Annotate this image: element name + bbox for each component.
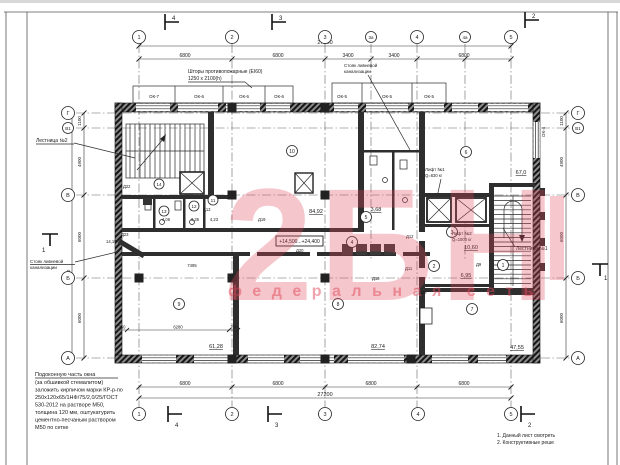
dim-bottom-seg-4: 6800	[458, 381, 469, 387]
axis-2b: 2	[230, 412, 233, 418]
note-left-4: 250х120х65/1НФ/75/2,0/25/ГОСТ	[35, 395, 118, 401]
dim-int-3: 6280	[173, 325, 183, 330]
door-d13: Д13	[203, 207, 211, 212]
axis-5b: 5	[509, 412, 512, 418]
window-label-ok5b: ОК-5	[382, 94, 393, 99]
room-11: 11	[211, 198, 216, 203]
watermark: 2БН федеральная сеть	[224, 155, 564, 334]
dim-int-2: 750	[119, 325, 127, 330]
note-right-2: 2. Конструктивные реше	[497, 440, 554, 446]
section-left-1: 1	[42, 248, 46, 254]
note-left-2: (за обшивкой стемалитом)	[35, 379, 103, 386]
section-top-3: 3	[279, 16, 283, 22]
dimensions-left: 1100 4900 6000 6000 10000	[66, 111, 87, 361]
axis-3b: 3	[323, 412, 326, 418]
window-label-ok5c: ОК-5	[424, 94, 435, 99]
axis-1b: 1	[137, 412, 140, 418]
dim-top-seg-1: 6800	[179, 53, 190, 59]
watermark-letter-partial	[550, 196, 564, 280]
room-9: 9	[178, 302, 181, 308]
axis-3a: 3а	[368, 35, 374, 40]
note-left-6: толщина 120 мм, оштукатурить	[35, 410, 115, 416]
dim-left-seg-3: 6000	[77, 231, 82, 242]
note-block-left: Подоконную часть окна (за обшивкой стема…	[35, 372, 123, 431]
parapet-boxes	[133, 83, 446, 103]
dimensions-interior: 7495 750 6280 750	[116, 263, 240, 332]
axis-4a: 4а	[462, 35, 468, 40]
dim-bottom-seg-2: 6800	[272, 381, 283, 387]
axis-a: А	[66, 356, 70, 362]
axis-4: 4	[415, 35, 418, 41]
axis-b-r: Б	[576, 276, 580, 282]
note-left-1: Подоконную часть окна	[35, 372, 96, 378]
grid-bubbles-bottom: 1 2 3 4 5	[133, 408, 518, 421]
stair-2-label: Лестница №2	[36, 138, 68, 144]
dim-bottom-seg-1: 6800	[179, 381, 190, 387]
section-top-4: 4	[172, 16, 176, 22]
window-right-wall	[533, 122, 539, 158]
note-left-5: 530-2012 на растворе М50,	[35, 403, 105, 409]
dim-left-seg-4: 6000	[77, 312, 82, 323]
note-left-3: заложить кирпичом марки КР-р-по	[35, 388, 123, 394]
riser-left-1: Стояк ливневой	[30, 258, 64, 264]
area-room-9: 61,28	[209, 344, 223, 350]
axis-1: 1	[137, 35, 140, 41]
curtain-note-1: Шторы противопожарные (EI60)	[188, 69, 263, 75]
curtain-note-2: 1250 х 2100(h)	[188, 76, 222, 82]
area-room-11: 4,23	[210, 217, 219, 222]
section-bottom-4: 4	[175, 423, 179, 429]
axis-3: 3	[323, 35, 326, 41]
window-label-ok4: ОК-4	[541, 126, 546, 137]
axis-a-r: А	[576, 356, 580, 362]
room-12: 12	[191, 204, 197, 209]
watermark-subtitle: федеральная сеть	[228, 283, 544, 300]
dim-top-seg-4: 3400	[388, 53, 399, 59]
window-label-ok6b: ОК-6	[239, 94, 250, 99]
axis-5: 5	[509, 35, 512, 41]
dim-bottom-total: 27200	[317, 392, 332, 398]
dim-bottom-seg-3: 6800	[365, 381, 376, 387]
axis-4b: 4	[416, 412, 419, 418]
area-room-13: 4,06	[162, 217, 171, 222]
window-label-ok6c: ОК-6	[274, 94, 285, 99]
dim-top-seg-3: 3400	[342, 53, 353, 59]
axis-v1: В1	[65, 126, 71, 131]
grid-bubbles-left: Г В1 В Б А	[62, 107, 75, 365]
room-14: 14	[156, 182, 162, 187]
window-label-ok7: ОК-7	[149, 94, 160, 99]
riser-left-2: канализации	[30, 265, 57, 270]
dim-left-seg-1: 1100	[77, 116, 82, 126]
grid-bubbles-top: 1 2 3 3а 4 4а 5	[133, 31, 518, 44]
room-13: 13	[161, 209, 167, 214]
area-room-12: 3,35	[191, 217, 200, 222]
window-label-ok5a: ОК-5	[337, 94, 348, 99]
dim-left-seg-2: 4900	[77, 156, 82, 167]
watermark-letters: 2БН	[224, 155, 562, 334]
axis-v1-r: В1	[575, 126, 581, 131]
door-d23: Д23	[121, 232, 129, 237]
note-left-7: цементно-песчаным раствором	[35, 418, 116, 424]
section-right-1: 1	[604, 276, 608, 282]
dim-right-seg-1: 1100	[559, 116, 564, 126]
section-bottom-3: 3	[275, 423, 279, 429]
floor-plan-drawing: 27200 6800 6800 3400 3400 6800 6800 6800…	[0, 0, 620, 465]
axis-b: Б	[66, 276, 70, 282]
staircase-2	[126, 124, 204, 178]
axis-v: В	[66, 193, 70, 199]
riser-top-2: канализации	[344, 69, 371, 74]
window-label-ok6a: ОК-6	[194, 94, 205, 99]
area-room-8: 82,74	[371, 344, 385, 350]
axis-g: Г	[67, 111, 70, 117]
axis-2: 2	[230, 35, 233, 41]
section-top-2: 2	[532, 14, 536, 20]
axis-g-r: Г	[577, 111, 580, 117]
dim-top-seg-2: 6800	[272, 53, 283, 59]
dim-int-1: 7495	[187, 263, 197, 268]
window-top-strip	[0, 0, 620, 3]
note-right-1: 1. Данный лист смотреть	[497, 432, 555, 439]
dim-top-seg-5: 6800	[458, 53, 469, 59]
note-block-right: 1. Данный лист смотреть 2. Конструктивны…	[497, 432, 555, 446]
axis-v-r: В	[576, 193, 580, 199]
riser-top-1: Стояк ливневой	[344, 62, 378, 68]
elevation-mark: 14,15	[106, 239, 117, 244]
grid-bubbles-right: Г В1 В Б А	[572, 107, 585, 365]
section-bottom-2: 2	[528, 423, 532, 429]
area-room-7: 47,55	[510, 345, 524, 351]
note-left-8: М50 по сетке	[35, 425, 68, 431]
door-d22: Д22	[123, 184, 131, 189]
